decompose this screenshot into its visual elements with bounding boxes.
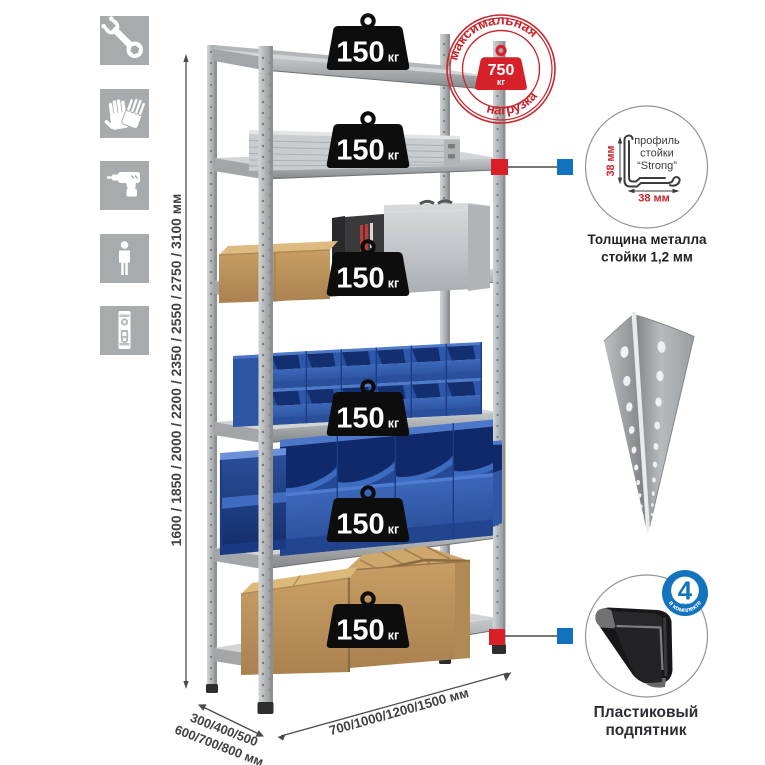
svg-text:профиль: профиль [634, 135, 680, 147]
svg-text:1600 / 1850 / 2000 / 2200 / 23: 1600 / 1850 / 2000 / 2200 / 2350 / 2550 … [168, 194, 184, 547]
svg-text:стойки 1,2 мм: стойки 1,2 мм [601, 250, 693, 265]
svg-text:стойки: стойки [640, 148, 674, 160]
svg-text:“Strong”: “Strong” [637, 160, 677, 172]
svg-text:штуки: штуки [678, 602, 692, 607]
svg-text:Пластиковый: Пластиковый [594, 704, 699, 721]
svg-text:кг: кг [497, 77, 506, 87]
svg-text:подпятник: подпятник [605, 722, 686, 739]
svg-text:38 мм: 38 мм [605, 145, 617, 176]
svg-text:38 мм: 38 мм [638, 193, 670, 205]
svg-text:Толщина металла: Толщина металла [587, 232, 707, 247]
